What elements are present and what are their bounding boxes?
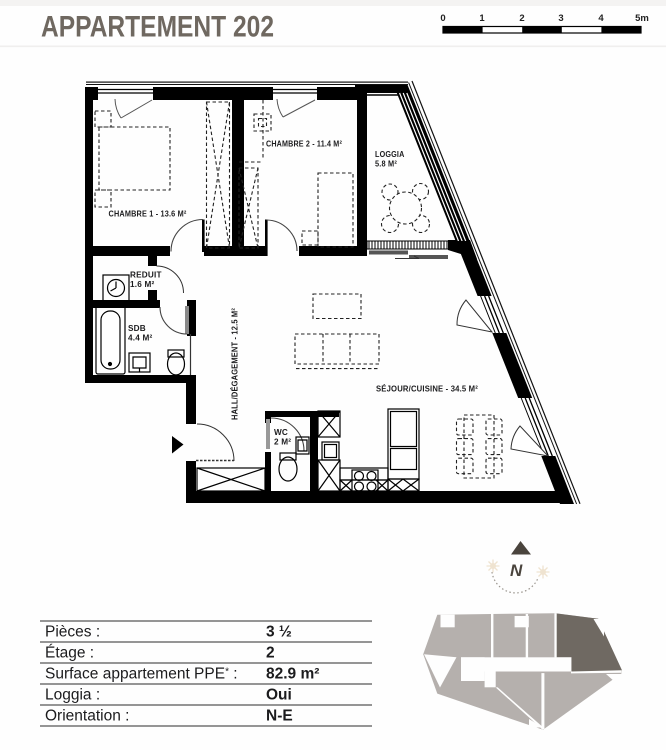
svg-text:2 M²: 2 M²	[274, 438, 291, 447]
svg-text:4: 4	[598, 13, 604, 24]
svg-text:Pièces :: Pièces :	[45, 624, 100, 641]
svg-text:Orientation :: Orientation :	[45, 708, 129, 725]
svg-text:N-E: N-E	[266, 708, 293, 725]
svg-text:1: 1	[479, 13, 485, 24]
svg-text:Étage :: Étage :	[45, 645, 94, 662]
svg-text:APPARTEMENT 202: APPARTEMENT 202	[41, 11, 274, 44]
svg-text:SDB: SDB	[128, 324, 146, 333]
svg-text:WC: WC	[274, 428, 288, 437]
svg-text:Oui: Oui	[266, 687, 292, 704]
svg-text:N: N	[510, 561, 523, 580]
svg-text:HALL/DÉGAGEMENT - 12.5 M²: HALL/DÉGAGEMENT - 12.5 M²	[230, 308, 240, 420]
svg-text:1.6 M²: 1.6 M²	[130, 280, 154, 289]
svg-text:Loggia :: Loggia :	[45, 687, 100, 704]
svg-text:4.4 M²: 4.4 M²	[128, 334, 152, 343]
svg-text:REDUIT: REDUIT	[130, 271, 162, 280]
svg-text:CHAMBRE 1 - 13.6 M²: CHAMBRE 1 - 13.6 M²	[109, 210, 187, 219]
svg-text:LOGGIA: LOGGIA	[375, 150, 405, 159]
svg-text:CHAMBRE 2 - 11.4 M²: CHAMBRE 2 - 11.4 M²	[266, 140, 342, 149]
svg-text:3 ½: 3 ½	[266, 624, 292, 641]
svg-text:5m: 5m	[635, 13, 649, 24]
svg-text:Surface appartement PPE* :: Surface appartement PPE* :	[45, 666, 238, 683]
svg-text:0: 0	[440, 13, 445, 24]
svg-text:2: 2	[519, 13, 524, 24]
svg-text:5.8 M²: 5.8 M²	[375, 160, 397, 169]
svg-text:SÉJOUR/CUISINE - 34.5 M²: SÉJOUR/CUISINE - 34.5 M²	[376, 384, 478, 394]
svg-text:82.9 m²: 82.9 m²	[266, 666, 319, 683]
svg-text:2: 2	[266, 645, 275, 662]
svg-text:3: 3	[558, 13, 563, 24]
